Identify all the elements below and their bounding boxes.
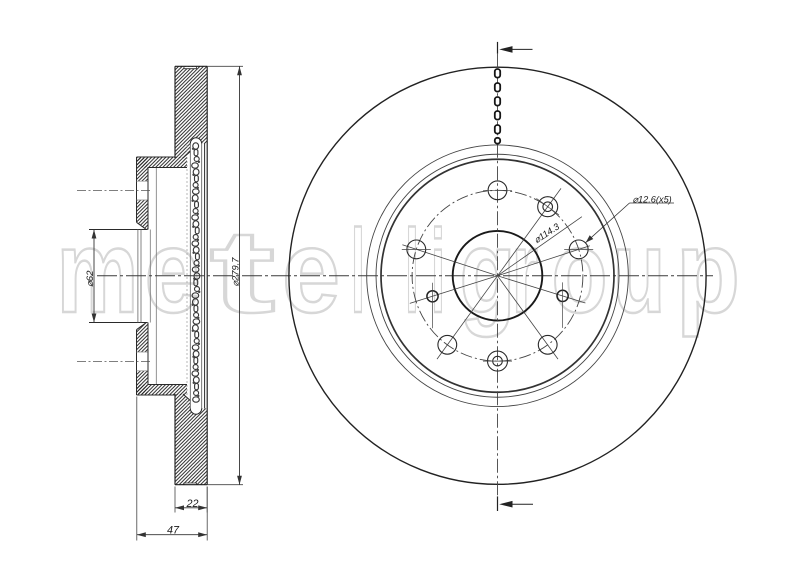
svg-text:e: e <box>282 206 340 338</box>
svg-text:o: o <box>552 206 608 338</box>
svg-text:g: g <box>460 206 516 338</box>
svg-text:l: l <box>351 206 365 338</box>
svg-text:p: p <box>676 206 740 338</box>
svg-text:22: 22 <box>185 498 198 510</box>
svg-text:u: u <box>613 206 666 338</box>
svg-text:e: e <box>145 206 201 338</box>
svg-text:47: 47 <box>167 525 180 537</box>
svg-text:⌀279.7: ⌀279.7 <box>230 257 240 287</box>
svg-text:m: m <box>57 206 139 338</box>
svg-text:t: t <box>210 206 276 338</box>
svg-text:i: i <box>431 206 445 338</box>
svg-text:⌀62: ⌀62 <box>85 270 96 287</box>
